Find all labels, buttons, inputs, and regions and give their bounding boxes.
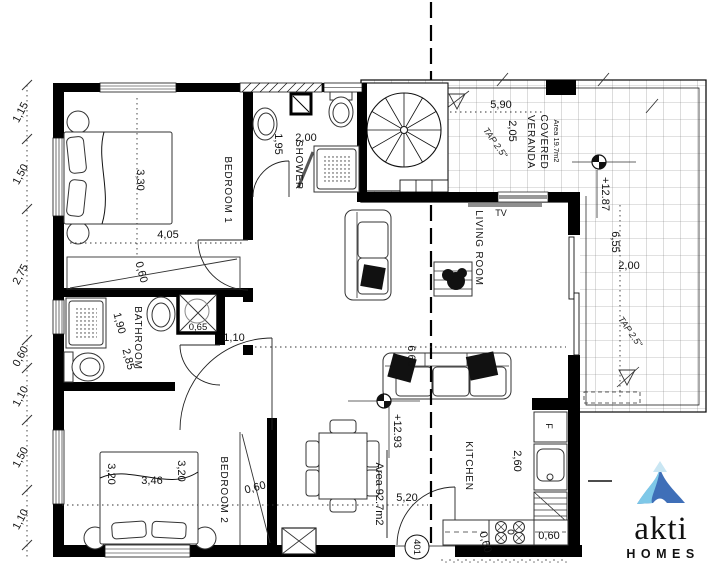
label-living-room: LIVING ROOM [473, 210, 484, 285]
pillow [111, 521, 146, 539]
dim-counter-b: 0,60 [538, 530, 559, 542]
dim-kitchen-width: 2,60 [511, 450, 523, 471]
label-shower: SHOWER [293, 140, 304, 190]
dim-shower-depth: 1,95 [272, 133, 284, 154]
dim-bathroom-width: 1,90 [110, 311, 127, 335]
sliding-door-living-veranda [568, 235, 580, 355]
label-veranda-line2: VERANDA [525, 115, 536, 169]
side-table [67, 222, 89, 244]
total-area: Area 92.7m2 [373, 463, 385, 526]
door-bedroom2 [180, 338, 272, 430]
pillow [152, 521, 187, 539]
veranda-column [546, 80, 576, 95]
tap [547, 474, 553, 480]
side-table [67, 111, 89, 133]
bedroom2-furniture [84, 432, 316, 554]
dim-bed2-head: 3,20 [105, 463, 117, 484]
akti-homes-logo: akti HOMES [626, 461, 699, 561]
chain-dim: 1,50 [11, 162, 32, 187]
dim-shaft: 0,65 [189, 322, 208, 333]
left-dimension-chain: 1,15 1,50 2,75 0,60 1,10 1,50 1,10 [11, 100, 32, 532]
dim-veranda-side: 2,00 [618, 260, 639, 272]
plant-table [434, 262, 472, 296]
window-living-top [498, 192, 548, 202]
paving-strip [440, 557, 568, 565]
dim-bedroom1-width: 3,30 [134, 169, 146, 190]
window-left-bathroom [53, 300, 64, 334]
window-top-shower [324, 83, 362, 92]
window-left-bedroom1 [53, 138, 64, 216]
chair [330, 499, 356, 512]
door-shower [253, 161, 289, 197]
dim-bed2-foot: 3,20 [175, 460, 187, 481]
water-heater [534, 492, 567, 522]
wall-hatch-segment [240, 83, 322, 92]
dining-set [306, 420, 379, 512]
level-veranda: +12.87 [599, 177, 611, 211]
dim-shower-width: 2,00 [295, 132, 316, 144]
logo-brand-text: akti [634, 511, 687, 547]
chair [306, 470, 319, 496]
door-bathroom [180, 345, 220, 385]
label-bedroom1: BEDROOM 1 [222, 156, 233, 223]
chain-dim: 0,60 [11, 344, 32, 369]
dim-hall-opening: 1,10 [223, 332, 244, 344]
hob [489, 520, 534, 545]
bedroom1-furniture [64, 111, 240, 289]
tv-unit [468, 203, 542, 207]
pillow [66, 136, 87, 174]
window-bottom-bedroom2 [105, 545, 190, 557]
kitchen-units [440, 412, 568, 565]
pillow [66, 179, 87, 217]
chain-dim: 1,15 [11, 100, 32, 125]
dim-bedroom1-length: 4,05 [157, 229, 178, 241]
dining-table [319, 433, 367, 499]
chair [306, 441, 319, 467]
shaft-box-2 [282, 528, 316, 554]
label-tv: TV [495, 208, 507, 218]
dim-bed2-width: 3,46 [141, 475, 162, 487]
floor-plan-canvas: 401 BEDROOM 1 SHOWER BATHROOM BEDROOM 2 … [0, 0, 720, 565]
spiral-staircase [357, 83, 448, 192]
veranda-area: Area 19.7m2 [552, 120, 561, 163]
door-number: 401 [411, 539, 422, 555]
dim-veranda-length: 6,55 [609, 231, 621, 252]
window-top-bedroom1 [100, 83, 176, 92]
door-bedroom1 [198, 240, 248, 290]
dim-veranda-depth: 2,05 [506, 120, 518, 141]
chain-dim: 1,10 [11, 507, 32, 532]
sofa-large [383, 351, 511, 399]
dim-veranda-width: 5,90 [490, 99, 511, 111]
label-fridge: F [544, 423, 554, 429]
door-number-tag: 401 [405, 535, 429, 559]
chain-dim: 2,75 [11, 262, 32, 287]
logo-peak-icon [653, 461, 667, 472]
wardrobe-bedroom1 [67, 257, 240, 289]
label-kitchen: KITCHEN [463, 441, 474, 491]
floor-plan-page: 401 BEDROOM 1 SHOWER BATHROOM BEDROOM 2 … [0, 0, 720, 565]
dim-living-width: 5,20 [396, 492, 417, 504]
chair [330, 420, 356, 433]
dim-bedroom1-wardrobe: 0,60 [132, 260, 149, 284]
label-veranda-line1: COVERED [538, 114, 549, 169]
label-bedroom2: BEDROOM 2 [218, 456, 229, 523]
sofa-small [345, 210, 391, 300]
dim-living-length: 6,60 [405, 345, 417, 366]
level-interior: +12.93 [391, 414, 403, 448]
chain-dim: 1,50 [11, 445, 32, 470]
window-left-bedroom2 [53, 430, 64, 504]
dim-bedroom2-wardrobe: 0,60 [243, 479, 267, 496]
chain-dim: 1,10 [11, 384, 32, 409]
living-furniture [306, 203, 542, 512]
logo-word-text: HOMES [626, 547, 699, 561]
throw-pillow [360, 264, 385, 289]
